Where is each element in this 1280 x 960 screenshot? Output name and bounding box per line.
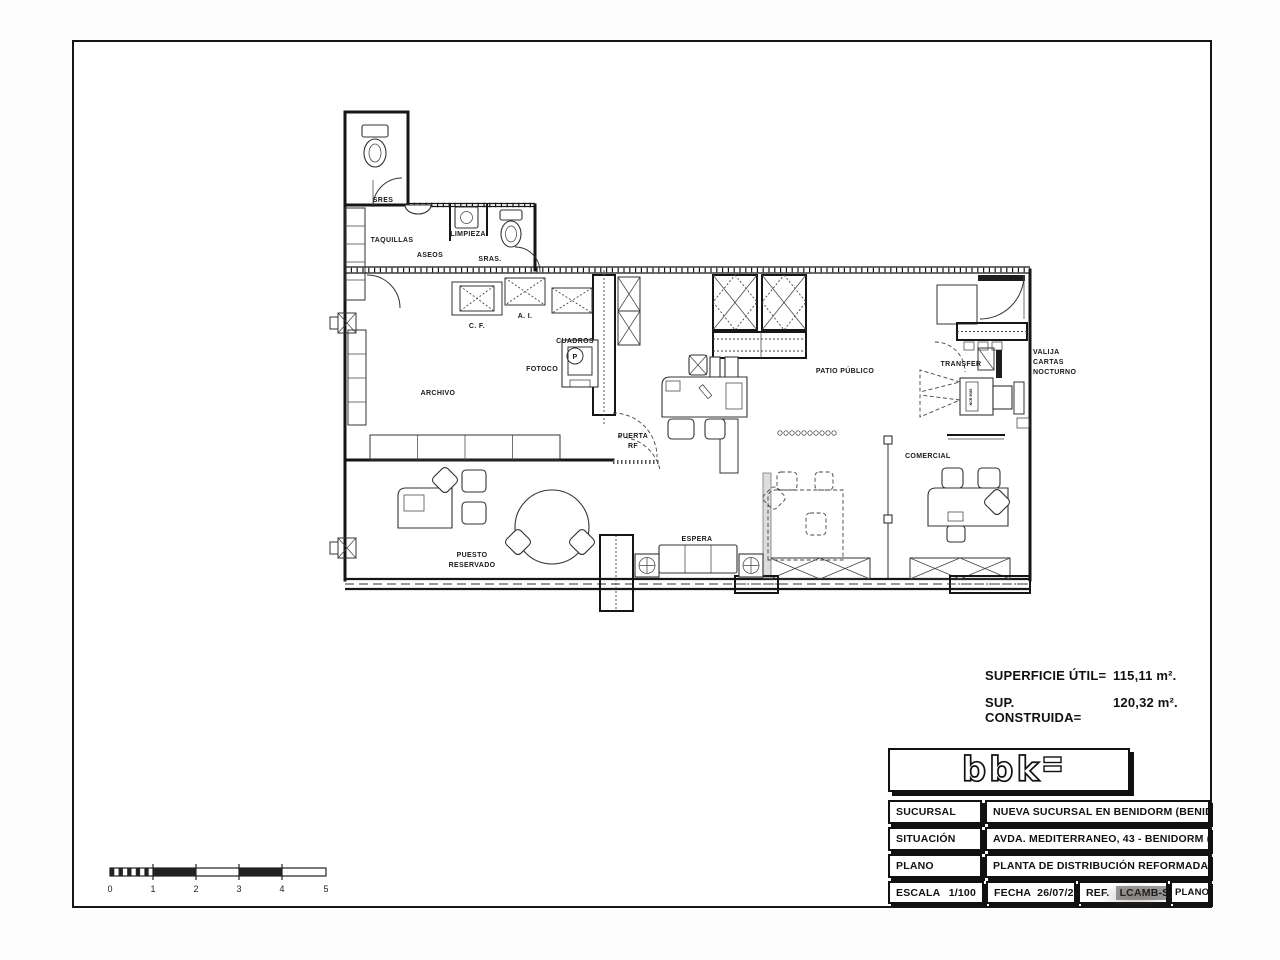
label-patio-publico: PATIO PÚBLICO xyxy=(816,366,875,375)
plano-label: PLANO xyxy=(890,860,940,872)
label-cuadros: CUADROS xyxy=(556,338,594,345)
bbk-logo-text: bbk xyxy=(962,751,1042,789)
surface-areas-note: SUPERFICIE ÚTIL= 115,11 m². SUP. CONSTRU… xyxy=(985,668,1220,737)
transfer-atm-area: NCR 5085 xyxy=(920,285,1029,428)
label-comercial: COMERCIAL xyxy=(905,453,951,460)
sanitary-fixtures xyxy=(362,125,522,247)
fecha-value: 26/07/2006 xyxy=(1037,887,1076,899)
floor-plan-drawing: NCR 5085 xyxy=(320,95,1080,655)
superficie-util-row: SUPERFICIE ÚTIL= 115,11 m². xyxy=(985,668,1220,683)
plano-value: PLANTA DE DISTRIBUCIÓN REFORMADA - SOLUC… xyxy=(987,860,1210,872)
scale-tick-5: 5 xyxy=(323,884,328,894)
situacion-value: AVDA. MEDITERRANEO, 43 - BENIDORM (ALICA… xyxy=(987,833,1210,845)
label-espera: ESPERA xyxy=(682,536,713,543)
scale-tick-4: 4 xyxy=(279,884,284,894)
fecha-box: FECHA 26/07/2006 xyxy=(986,881,1076,904)
scanned-floor-plan-page: { "plan_labels": { "sres": "SRES", "taqu… xyxy=(0,0,1280,960)
sucursal-value: NUEVA SUCURSAL EN BENIDORM (BENIDORM II) xyxy=(987,806,1210,818)
situacion-label-box: SITUACIÓN xyxy=(888,827,982,851)
label-aseos: ASEOS xyxy=(417,252,443,259)
graphic-scale-bar: 0 1 2 3 4 5 xyxy=(108,862,340,896)
scale-tick-3: 3 xyxy=(236,884,241,894)
escala-value: 1/100 xyxy=(949,887,976,899)
situacion-label: SITUACIÓN xyxy=(890,833,962,845)
label-sres: SRES xyxy=(373,197,393,204)
label-valija-3: NOCTURNO xyxy=(1033,369,1076,376)
label-transfer: TRANSFER xyxy=(941,361,982,368)
sup-construida-row: SUP. CONSTRUIDA= 120,32 m². xyxy=(985,695,1220,725)
sucursal-value-box: NUEVA SUCURSAL EN BENIDORM (BENIDORM II) xyxy=(985,800,1210,824)
label-valija-1: VALIJA xyxy=(1033,349,1059,356)
scale-bar-segments xyxy=(110,864,326,880)
superficie-util-value: 115,11 m². xyxy=(1113,668,1176,683)
scale-tick-0: 0 xyxy=(108,884,113,894)
escala-label: ESCALA xyxy=(896,887,940,899)
label-fotoco: FOTOCO xyxy=(526,366,558,373)
scan-smudge xyxy=(1098,882,1174,910)
plano-label-box: PLANO xyxy=(888,854,982,878)
sucursal-label: SUCURSAL xyxy=(890,806,962,818)
label-puerta-rf: RF xyxy=(628,443,638,450)
label-archivo: ARCHIVO xyxy=(421,390,456,397)
plano-num-label: PLANO Nº xyxy=(1172,887,1210,898)
plano-value-box: PLANTA DE DISTRIBUCIÓN REFORMADA - SOLUC… xyxy=(985,854,1210,878)
sup-construida-value: 120,32 m². xyxy=(1113,695,1178,725)
label-cf: C. F. xyxy=(469,323,485,330)
bbk-logo-superscript-bars xyxy=(1044,757,1061,772)
atm-model-label: NCR 5085 xyxy=(969,389,973,406)
label-reservado: RESERVADO xyxy=(449,562,496,569)
escala-box: ESCALA 1/100 xyxy=(888,881,984,904)
scale-bar-numbers: 0 1 2 3 4 5 xyxy=(108,884,329,894)
plano-num-box: PLANO Nº xyxy=(1170,881,1210,904)
label-p: P xyxy=(572,354,577,361)
scale-tick-2: 2 xyxy=(193,884,198,894)
label-sras: SRAS. xyxy=(478,256,501,263)
label-limpieza: LIMPIEZA xyxy=(450,231,485,238)
situacion-value-box: AVDA. MEDITERRANEO, 43 - BENIDORM (ALICA… xyxy=(985,827,1210,851)
label-puerta: PUERTA xyxy=(618,433,648,440)
label-valija-2: CARTAS xyxy=(1033,359,1064,366)
fecha-label: FECHA xyxy=(988,887,1037,899)
superficie-util-label: SUPERFICIE ÚTIL= xyxy=(985,668,1113,683)
label-puesto: PUESTO xyxy=(457,552,488,559)
label-taquillas: TAQUILLAS xyxy=(371,237,414,244)
sup-construida-label: SUP. CONSTRUIDA= xyxy=(985,695,1113,725)
bbk-logo-box: bbk xyxy=(888,748,1130,792)
scale-tick-1: 1 xyxy=(150,884,155,894)
label-ai: A. I. xyxy=(518,313,533,320)
sucursal-label-box: SUCURSAL xyxy=(888,800,982,824)
bbk-logo: bbk xyxy=(892,751,1126,789)
